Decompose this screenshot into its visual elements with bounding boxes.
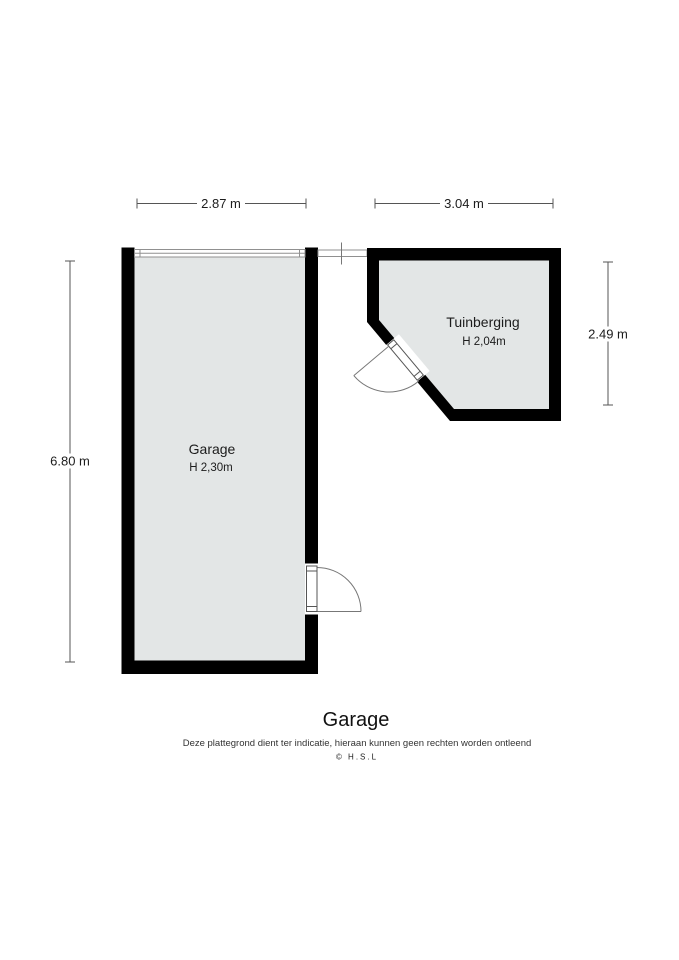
garage-wall-right-lower — [305, 615, 318, 675]
garage-room-height: H 2,30m — [189, 462, 232, 474]
tuinberging-room-label: Tuinberging — [446, 314, 519, 330]
floorplan-svg: Garage H 2,30m Tuinberging — [0, 0, 679, 960]
garage-room: Garage H 2,30m — [122, 248, 362, 675]
connector-fence — [318, 250, 367, 257]
dim-tuinberging-width: 3.04 m — [375, 196, 553, 211]
dim-label: 3.04 m — [444, 196, 484, 211]
dim-label: 6.80 m — [50, 454, 90, 469]
garage-wall-bottom — [122, 661, 319, 675]
tuinberging-door-open-leaf — [354, 346, 389, 376]
plan-title: Garage — [323, 709, 390, 731]
garage-wall-left — [122, 248, 135, 675]
garage-floor — [134, 257, 305, 661]
dim-label: 2.49 m — [588, 327, 628, 342]
tuinberging-floor — [379, 261, 549, 410]
garage-door-top — [135, 250, 306, 258]
plan-watermark: © H.S.L — [336, 753, 378, 762]
garage-room-label: Garage — [189, 441, 236, 457]
tuinberging-room-height: H 2,04m — [462, 336, 505, 348]
dim-garage-width: 2.87 m — [137, 196, 306, 211]
dim-garage-depth: 6.80 m — [46, 261, 94, 662]
plan-disclaimer: Deze plattegrond dient ter indicatie, hi… — [183, 738, 532, 749]
garage-wall-right-upper — [305, 248, 318, 564]
garage-side-door-arc — [317, 568, 361, 612]
dim-label: 2.87 m — [201, 196, 241, 211]
tuinberging-room: Tuinberging H 2,04m — [354, 248, 561, 421]
floorplan-page: Garage H 2,30m Tuinberging — [0, 0, 679, 960]
garage-side-door — [307, 566, 362, 612]
dim-tuinberging-depth: 2.49 m — [584, 262, 632, 405]
connector — [318, 243, 367, 265]
garage-side-door-leaf — [307, 566, 318, 612]
footer: Garage Deze plattegrond dient ter indica… — [183, 709, 532, 762]
